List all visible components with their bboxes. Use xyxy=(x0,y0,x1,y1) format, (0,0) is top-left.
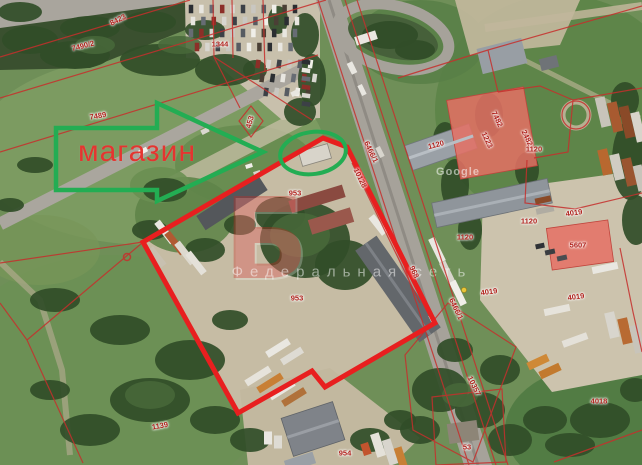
map-viewport[interactable]: Б Федеральная сеть Google 84237490/21344… xyxy=(0,0,642,465)
highlight-circle xyxy=(277,128,348,179)
magazin-annotation-text: магазин xyxy=(78,135,196,169)
cadastral-lines xyxy=(0,0,642,465)
annotation-layer xyxy=(0,0,642,465)
highlighted-parcel-outline xyxy=(143,138,435,413)
